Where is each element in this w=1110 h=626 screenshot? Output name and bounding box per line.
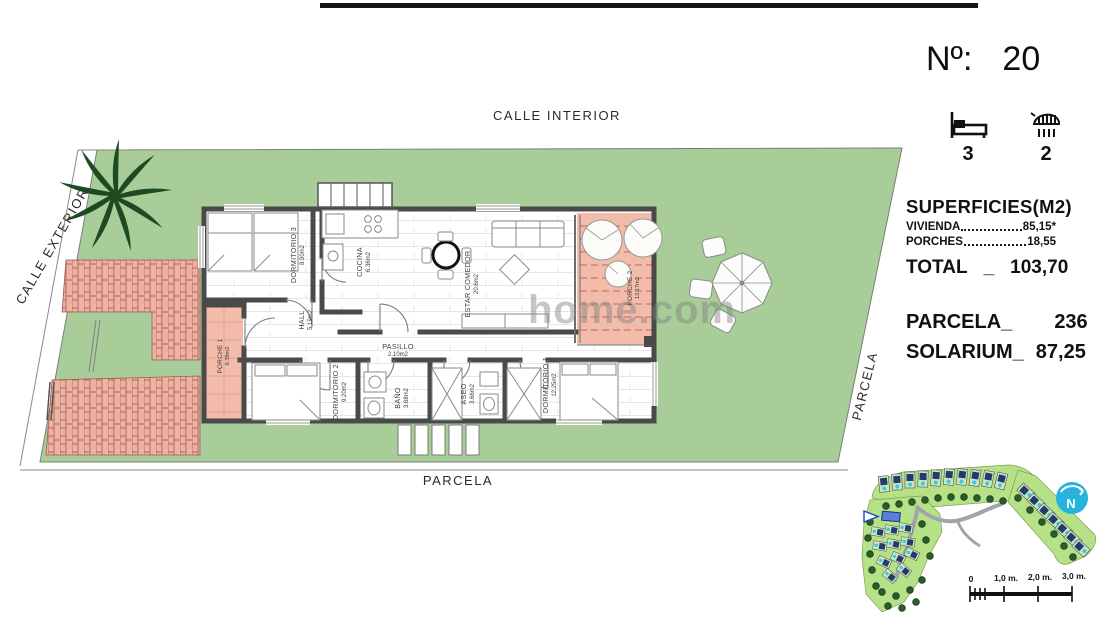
svg-text:BAÑO: BAÑO: [393, 387, 402, 409]
porches-label: PORCHES: [906, 236, 963, 248]
dotted-leader: [961, 229, 1021, 231]
svg-text:5.19m2: 5.19m2: [308, 309, 314, 330]
porches-row: PORCHES 18,55: [906, 236, 1056, 248]
amenities: 3 2: [906, 109, 1102, 166]
plot-number: Nº: 20: [906, 40, 1102, 79]
total-row: TOTAL _ 103,70: [906, 257, 1102, 279]
info-panel: Nº: 20 3: [906, 40, 1102, 364]
svg-text:6.38m2: 6.38m2: [225, 347, 231, 366]
bathrooms-amenity: 2: [1026, 109, 1066, 166]
parcela-bottom-label: PARCELA: [423, 473, 493, 488]
solarium-value: 87,25: [1036, 341, 1086, 364]
svg-text:ASEO: ASEO: [459, 383, 468, 404]
vivienda-label: VIVIENDA: [906, 221, 960, 233]
svg-text:20.6m2: 20.6m2: [474, 273, 480, 294]
parcela-label: PARCELA_: [906, 311, 1012, 334]
shower-icon: [1026, 109, 1066, 141]
scale-1: 1,0 m.: [994, 573, 1018, 583]
porches-value: 18,55: [1027, 236, 1056, 248]
minimap-selected-plot: [864, 511, 900, 522]
street-edge-line: [320, 3, 978, 8]
svg-text:3.66m2: 3.66m2: [470, 383, 476, 404]
floor-plan-page: CALLE INTERIOR CALLE EXTERIOR PARCELA PA…: [0, 0, 1110, 626]
svg-text:12.25m2: 12.25m2: [552, 373, 558, 397]
bed-icon: [946, 109, 990, 141]
room-label-hall: HALL5.19m2: [297, 309, 314, 330]
svg-text:DORMITORIO 3: DORMITORIO 3: [289, 227, 298, 283]
dotted-leader: [964, 244, 1026, 246]
bottom-steps: [398, 425, 479, 455]
svg-text:6.36m2: 6.36m2: [366, 251, 372, 272]
surfaces-title: SUPERFICIES(M2): [906, 196, 1102, 218]
minimap: N 0 1,0 m. 2,0 m. 3,0 m.: [858, 462, 1108, 622]
svg-text:3.68m2: 3.68m2: [404, 387, 410, 408]
svg-text:HALL: HALL: [297, 310, 306, 329]
watermark: home.com: [528, 288, 736, 333]
bedrooms-count: 3: [962, 143, 973, 166]
total-separator: _: [984, 257, 995, 279]
svg-text:PASILLO: PASILLO: [382, 342, 414, 351]
svg-text:DORMITORIO 1: DORMITORIO 1: [541, 357, 550, 413]
svg-text:PORCHE 1: PORCHE 1: [217, 338, 224, 373]
scale-0: 0: [969, 574, 974, 584]
stairs: [318, 183, 392, 207]
scale-3: 3,0 m.: [1062, 571, 1086, 581]
svg-text:DORMITORIO 2: DORMITORIO 2: [331, 364, 340, 420]
total-value: 103,70: [1010, 257, 1068, 279]
north-arrow-icon: N: [1056, 482, 1088, 514]
parcela-value: 236: [1054, 311, 1087, 334]
solarium-label: SOLARIUM_: [906, 341, 1024, 364]
svg-text:8.90m2: 8.90m2: [300, 244, 306, 265]
room-label-bano: BAÑO3.68m2: [393, 387, 410, 409]
scale-bar: 0 1,0 m. 2,0 m. 3,0 m.: [969, 571, 1086, 602]
plot-number-value: 20: [1002, 40, 1040, 79]
svg-text:2.10m2: 2.10m2: [388, 352, 409, 358]
scale-2: 2,0 m.: [1028, 572, 1052, 582]
vivienda-row: VIVIENDA 85,15*: [906, 221, 1056, 233]
vivienda-value: 85,15*: [1023, 221, 1056, 233]
svg-text:ESTAR COMEDOR: ESTAR COMEDOR: [463, 251, 472, 318]
brick-driveway: [46, 376, 200, 455]
solarium-row: SOLARIUM_ 87,25: [906, 341, 1102, 364]
bedrooms-amenity: 3: [946, 109, 990, 166]
bathrooms-count: 2: [1040, 143, 1051, 166]
north-letter: N: [1066, 496, 1075, 511]
plot-number-label: Nº:: [926, 40, 972, 79]
svg-text:9.20m2: 9.20m2: [342, 381, 348, 402]
calle-interior-label: CALLE INTERIOR: [493, 108, 621, 123]
room-label-aseo: ASEO3.66m2: [459, 383, 476, 404]
svg-text:COCINA: COCINA: [355, 247, 364, 277]
parcela-row: PARCELA_ 236: [906, 311, 1102, 334]
total-label: TOTAL: [906, 257, 968, 279]
